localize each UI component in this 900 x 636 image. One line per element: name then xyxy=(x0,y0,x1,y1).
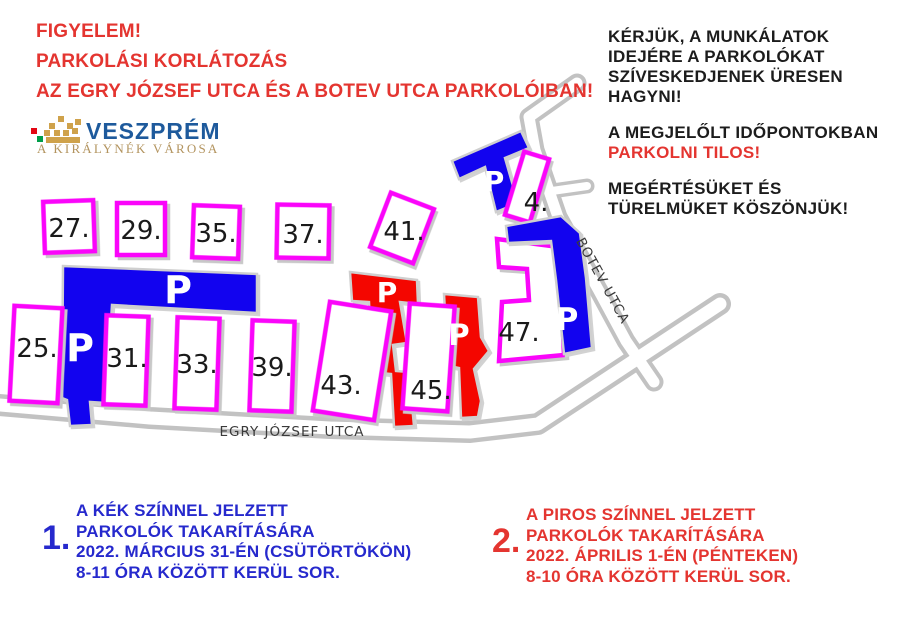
crown-square xyxy=(49,123,55,129)
parking-p-icon: P xyxy=(484,165,505,198)
legend-line: A PIROS SZÍNNEL JELZETT xyxy=(526,505,798,526)
notice-line: HAGYNI! xyxy=(608,87,878,107)
legend-2-text: A PIROS SZÍNNEL JELZETT PARKOLÓK TAKARÍT… xyxy=(526,505,798,587)
legend-line: A KÉK SZÍNNEL JELZETT xyxy=(76,501,411,522)
legend-1-number: 1. xyxy=(42,519,70,558)
legend-line: PARKOLÓK TAKARÍTÁSÁRA xyxy=(76,522,411,543)
parking-p-icon: P xyxy=(164,268,192,312)
building-43 xyxy=(313,302,391,420)
legend-2-number: 2. xyxy=(492,522,520,561)
building-label-47: 47. xyxy=(498,318,539,348)
veszprem-logo-tagline: A KIRÁLYNÉK VÁROSA xyxy=(37,141,220,157)
notice-thanks: MEGÉRTÉSÜKET ÉS TÜRELMÜKET KÖSZÖNJÜK! xyxy=(608,179,878,219)
crown-square xyxy=(63,130,69,136)
building-label-31: 31. xyxy=(106,344,147,374)
parking-restriction-flyer: { "title": { "line1": "FIGYELEM!", "line… xyxy=(0,0,900,636)
building-label-29: 29. xyxy=(120,216,161,246)
building-label-37: 37. xyxy=(282,220,323,250)
building-label-25: 25. xyxy=(16,334,57,364)
legend-line: 8-11 ÓRA KÖZÖTT KERÜL SOR. xyxy=(76,563,411,584)
notice-line: A MEGJELŐLT IDŐPONTOKBAN xyxy=(608,123,878,143)
crown-square xyxy=(44,130,50,136)
legend-1-text: A KÉK SZÍNNEL JELZETT PARKOLÓK TAKARÍTÁS… xyxy=(76,501,411,583)
building-label-43: 43. xyxy=(320,371,361,401)
crown-square xyxy=(54,130,60,136)
crown-square xyxy=(58,116,64,122)
legend-line: 8-10 ÓRA KÖZÖTT KERÜL SOR. xyxy=(526,567,798,588)
legend-line: 2022. MÁRCIUS 31-ÉN (CSÜTÖRTÖKÖN) xyxy=(76,542,411,563)
building-label-33: 33. xyxy=(176,350,217,380)
parking-p-icon: P xyxy=(66,326,94,370)
notice-request: KÉRJÜK, A MUNKÁLATOK IDEJÉRE A PARKOLÓKA… xyxy=(608,27,878,107)
notice-line: KÉRJÜK, A MUNKÁLATOK xyxy=(608,27,878,47)
title-line-2: PARKOLÁSI KORLÁTOZÁS xyxy=(36,47,593,77)
parking-p-icon: P xyxy=(377,276,398,309)
building-label-45: 45. xyxy=(410,376,451,406)
building-label-35: 35. xyxy=(195,219,236,249)
crown-square xyxy=(72,128,78,134)
building-label-4: 4. xyxy=(524,188,549,218)
parking-p-icon: P xyxy=(448,318,469,352)
notice-line: SZÍVESKEDJENEK ÜRESEN xyxy=(608,67,878,87)
side-road-stub-surface xyxy=(552,186,587,191)
building-label-27: 27. xyxy=(48,214,89,244)
building-label-41: 41. xyxy=(383,217,424,247)
flyer-title: FIGYELEM! PARKOLÁSI KORLÁTOZÁS AZ EGRY J… xyxy=(36,17,593,107)
parking-p-icon: P xyxy=(556,302,579,338)
title-line-3: AZ EGRY JÓZSEF UTCA ÉS A BOTEV UTCA PARK… xyxy=(36,77,593,107)
notice-line: MEGÉRTÉSÜKET ÉS xyxy=(608,179,878,199)
legend-line: 2022. ÁPRILIS 1-ÉN (PÉNTEKEN) xyxy=(526,546,798,567)
crown-square xyxy=(75,119,81,125)
veszprem-crown-icon xyxy=(31,116,81,143)
crown-red-square xyxy=(31,128,37,134)
notice-text: KÉRJÜK, A MUNKÁLATOK IDEJÉRE A PARKOLÓKA… xyxy=(608,27,878,235)
title-line-1: FIGYELEM! xyxy=(36,17,593,47)
notice-line: IDEJÉRE A PARKOLÓKAT xyxy=(608,47,878,67)
notice-line: TÜRELMÜKET KÖSZÖNJÜK! xyxy=(608,199,878,219)
legend-line: PARKOLÓK TAKARÍTÁSÁRA xyxy=(526,526,798,547)
notice-line-no-parking: PARKOLNI TILOS! xyxy=(608,143,878,163)
building-label-39: 39. xyxy=(251,353,292,383)
notice-prohibition: A MEGJELŐLT IDŐPONTOKBAN PARKOLNI TILOS! xyxy=(608,123,878,163)
street-label-egry: EGRY JÓZSEF UTCA xyxy=(219,422,364,440)
